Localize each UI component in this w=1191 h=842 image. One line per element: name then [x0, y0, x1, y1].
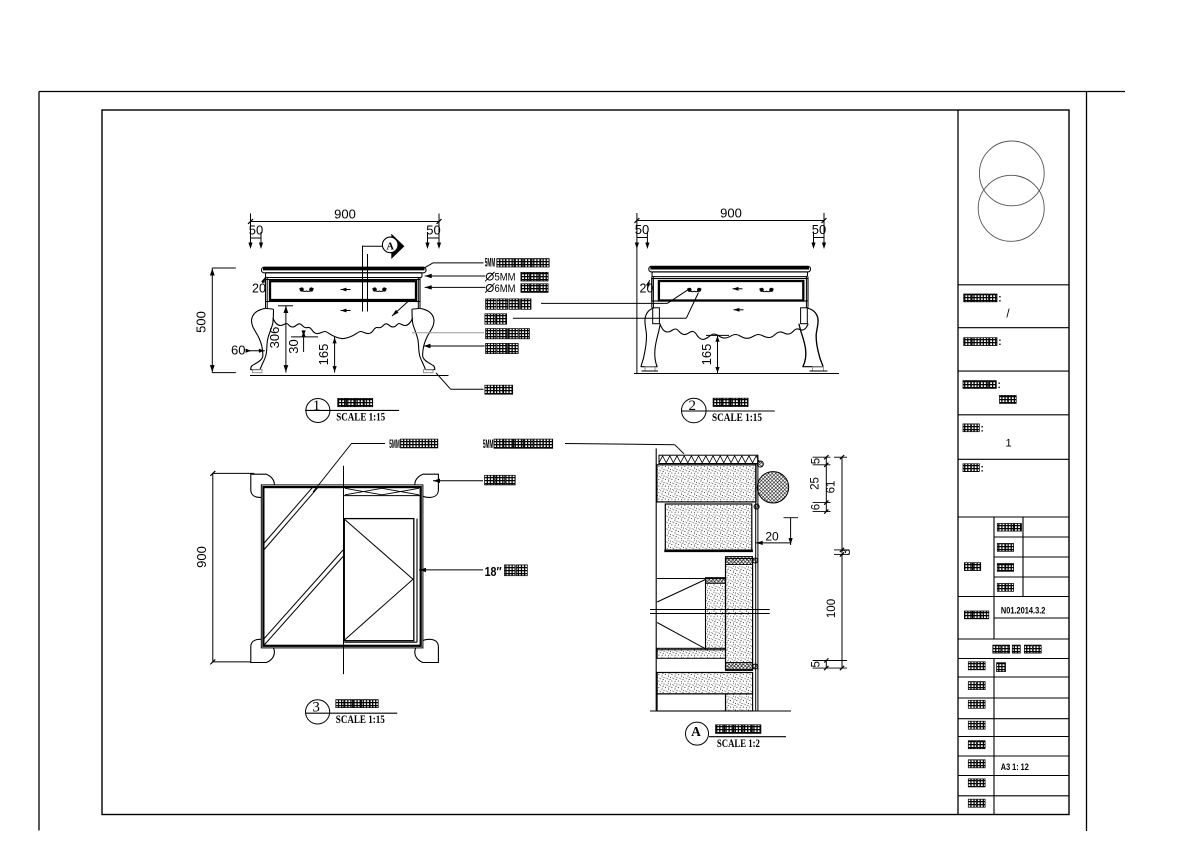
svg-text:18″: 18″ [485, 565, 502, 579]
svg-text:1: 1 [313, 398, 321, 414]
svg-text:500: 500 [194, 311, 209, 333]
svg-text:900: 900 [194, 546, 209, 568]
svg-text:A: A [691, 724, 701, 739]
svg-text:A3 1: 12: A3 1: 12 [1001, 762, 1029, 773]
svg-text:900: 900 [334, 207, 356, 222]
svg-text::: : [998, 337, 1001, 348]
svg-text:SCALE 1:15: SCALE 1:15 [712, 410, 762, 424]
svg-text:50: 50 [249, 223, 263, 238]
svg-text::: : [998, 380, 1001, 391]
svg-text:50: 50 [426, 223, 440, 238]
svg-text:60: 60 [231, 343, 245, 358]
svg-text:6MM: 6MM [495, 283, 516, 295]
svg-text:306: 306 [267, 327, 282, 349]
svg-text:25: 25 [810, 477, 822, 490]
svg-text:5: 5 [811, 458, 823, 464]
svg-text:900: 900 [720, 206, 742, 221]
svg-text:SCALE 1:15: SCALE 1:15 [336, 410, 385, 424]
svg-text:50: 50 [812, 222, 826, 237]
svg-text:3: 3 [841, 549, 853, 555]
svg-text:50: 50 [635, 222, 649, 237]
svg-text:20: 20 [765, 530, 779, 544]
svg-text:5MM: 5MM [483, 437, 494, 451]
svg-text:5MM: 5MM [495, 271, 516, 283]
svg-text:5MM: 5MM [485, 255, 496, 269]
svg-text:1: 1 [1006, 438, 1012, 450]
svg-text:N01.2014.3.2: N01.2014.3.2 [1001, 606, 1046, 617]
svg-text:SCALE 1:2: SCALE 1:2 [717, 736, 760, 750]
svg-text:20: 20 [252, 282, 266, 296]
svg-text::: : [981, 463, 984, 474]
svg-text:5MM: 5MM [389, 437, 400, 451]
svg-text:A: A [386, 242, 394, 253]
svg-text:SCALE 1:15: SCALE 1:15 [336, 712, 385, 726]
svg-text:100: 100 [826, 599, 838, 618]
svg-text:165: 165 [699, 344, 714, 366]
svg-text::: : [981, 423, 984, 434]
svg-text:165: 165 [316, 344, 331, 366]
svg-text:20: 20 [640, 282, 654, 296]
svg-text:6: 6 [811, 504, 823, 510]
svg-text::: : [998, 294, 1001, 305]
svg-text:61: 61 [826, 481, 838, 494]
svg-text:2: 2 [689, 398, 697, 414]
svg-text:30: 30 [286, 339, 301, 353]
svg-text:5: 5 [811, 661, 823, 667]
